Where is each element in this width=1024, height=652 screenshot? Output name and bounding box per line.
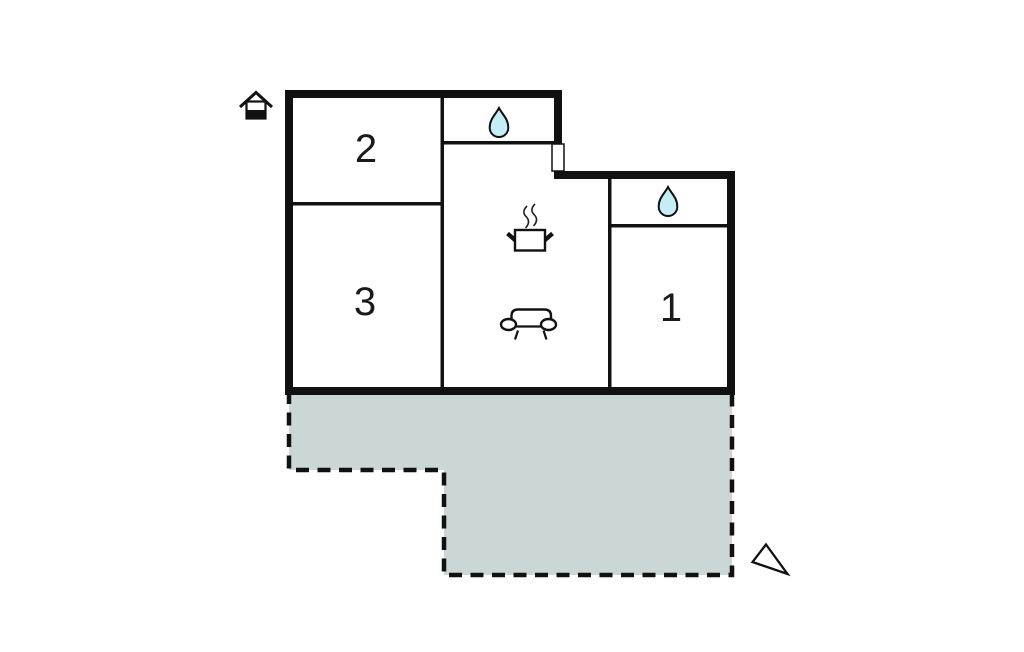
view-direction-triangle-icon [753,545,788,575]
wall-outer-top [285,90,562,98]
floorplan-drawing: 2 3 1 [0,0,1024,652]
sofa-armrest-left [501,319,516,330]
pot-body [515,230,545,251]
floorplan-page: 2 3 1 [0,0,1024,652]
wall-inner-right-bathroom-bottom [612,224,728,228]
room-3-label: 3 [354,280,376,324]
wall-outer-step [554,171,735,179]
steam-line [524,206,529,228]
cooking-pot-icon [508,204,553,251]
water-drop-shape [659,187,678,216]
sofa-armrest-right [541,319,556,330]
room-1-label: 1 [660,286,682,330]
water-drop-icon [659,187,678,216]
window [552,144,564,171]
sofa-icon [501,310,556,340]
sofa-leg-right [544,331,547,340]
wall-inner-vertical-left [441,98,445,387]
steam-line [532,204,537,226]
wall-outer-right [727,171,735,395]
room-2-label: 2 [355,127,377,171]
wall-inner-top-bathroom-bottom [444,141,554,145]
water-drop-icon [490,108,509,137]
house-body-lower-half [247,110,266,119]
wall-outer-left [285,90,293,395]
wall-inner-vertical-right [608,179,612,387]
wall-outer-bottom [285,387,735,395]
wall-inner-room2-room3-divider [293,202,441,206]
terrace-area [289,391,732,575]
wall-outer-upper-right [554,90,562,144]
house-walls [285,90,735,395]
north-house-icon [240,93,272,119]
sofa-leg-left [515,331,518,340]
water-drop-shape [490,108,509,137]
